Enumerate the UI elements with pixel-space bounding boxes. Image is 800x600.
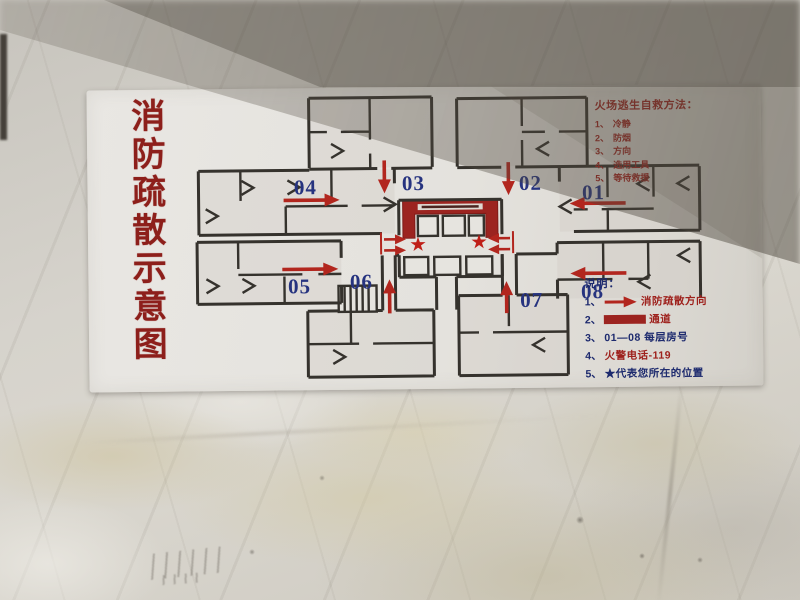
room-label-07: 07	[520, 288, 543, 312]
escape-item-num: 5、	[595, 173, 609, 183]
evac-arrow-core-left-2	[384, 245, 406, 255]
escape-item-text: 选用工具	[613, 159, 649, 169]
escape-item-text: 冷静	[613, 119, 631, 129]
escape-item-text: 防烟	[613, 132, 631, 142]
escape-guide-title: 火场逃生自救方法：	[595, 96, 747, 114]
evacuation-sign-board: 消防疏散示意图	[86, 83, 763, 392]
legend-row-location: 5、 ★代表您所在的位置	[585, 365, 757, 382]
evac-arrow-room-02	[502, 162, 515, 195]
wall-edge	[0, 34, 7, 140]
legend-num: 4、	[585, 348, 601, 363]
legend-text: 消防疏散方向	[641, 293, 707, 309]
legend-row-corridor: 2、 通道	[585, 311, 757, 328]
location-star-icon: ★	[410, 235, 426, 254]
legend-text: ★代表您所在的位置	[605, 365, 704, 381]
legend-text: 01—08 每层房号	[604, 329, 688, 345]
room-label-05: 05	[288, 274, 311, 298]
legend-text: 通道	[649, 311, 671, 326]
location-star-icon: ★	[471, 232, 487, 251]
escape-item-num: 1、	[595, 119, 609, 129]
room-label-03: 03	[402, 171, 425, 195]
legend-row-fire-phone: 4、 火警电话-119	[585, 347, 757, 364]
legend-num: 2、	[585, 312, 601, 327]
legend-row-room-numbers: 3、 01—08 每层房号	[585, 329, 757, 346]
room-label-02: 02	[519, 171, 542, 195]
photo-of-evacuation-sign: 消防疏散示意图	[0, 0, 800, 600]
sign-title: 消防疏散示意图	[120, 98, 172, 364]
escape-item-num: 4、	[595, 160, 609, 170]
escape-item-num: 3、	[595, 146, 609, 156]
legend-num: 5、	[585, 366, 601, 381]
legend-num: 3、	[585, 330, 601, 345]
corridor-bar-icon	[604, 315, 646, 324]
room-label-04: 04	[294, 175, 317, 199]
evacuation-arrow-icon	[604, 295, 638, 307]
escape-item-num: 2、	[595, 133, 609, 143]
escape-guide-list: 1、冷静 2、防烟 3、方向 4、选用工具 5、等待救援	[595, 117, 748, 186]
room-label-06: 06	[350, 270, 373, 294]
legend-title: 说明：	[584, 274, 756, 292]
escape-item: 5、等待救援	[595, 171, 747, 186]
escape-guide: 火场逃生自救方法： 1、冷静 2、防烟 3、方向 4、选用工具 5、等待救援	[595, 96, 748, 186]
escape-item-text: 等待救援	[613, 173, 649, 183]
legend-text: 火警电话-119	[605, 347, 672, 363]
legend-num: 1、	[585, 294, 601, 309]
evac-arrow-core-right-2	[488, 244, 510, 254]
legend: 说明： 1、 消防疏散方向 2、 通道 3、 01—08 每层房号 4、	[584, 274, 757, 382]
legend-row-direction: 1、 消防疏散方向	[585, 293, 757, 310]
escape-item-text: 方向	[613, 146, 631, 156]
